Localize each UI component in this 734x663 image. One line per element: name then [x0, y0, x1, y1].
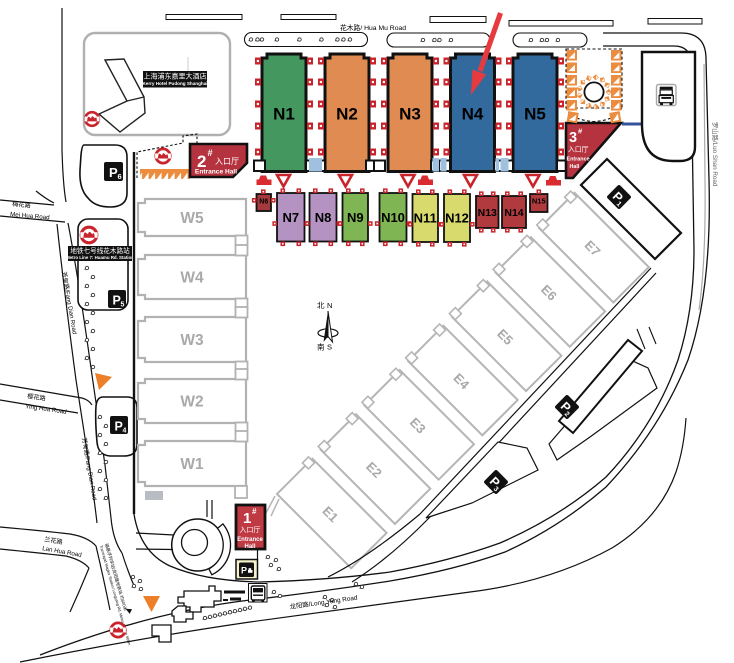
svg-text:Kerry Hotel Pudong Shanghai: Kerry Hotel Pudong Shanghai [142, 81, 207, 86]
svg-text:北: 北 [317, 301, 325, 310]
svg-text:Entrance: Entrance [567, 157, 590, 163]
svg-text:5: 5 [121, 302, 125, 309]
svg-text:W4: W4 [180, 270, 204, 287]
svg-text:W5: W5 [180, 210, 204, 227]
svg-text:N13: N13 [478, 207, 497, 219]
svg-text:#: # [208, 148, 213, 158]
svg-text:N7: N7 [282, 210, 299, 225]
svg-text:1: 1 [243, 510, 251, 527]
svg-text:N1: N1 [273, 105, 295, 124]
svg-text:梅花路: 梅花路 [12, 200, 32, 210]
svg-text:Metro Line 7: Huamu Rd. Statio: Metro Line 7: Huamu Rd. Station [66, 255, 134, 260]
svg-text:N5: N5 [524, 105, 546, 124]
svg-text:W3: W3 [180, 332, 204, 349]
svg-text:N2: N2 [336, 105, 358, 124]
svg-text:上海浦东嘉里大酒店: 上海浦东嘉里大酒店 [144, 72, 207, 81]
svg-text:Hall: Hall [570, 164, 580, 170]
svg-text:南: 南 [317, 342, 325, 352]
svg-text:N3: N3 [399, 105, 421, 124]
svg-text:W1: W1 [180, 456, 204, 473]
svg-text:入口厅: 入口厅 [240, 526, 261, 534]
svg-text:P: P [241, 566, 247, 576]
svg-text:入口厅: 入口厅 [568, 146, 589, 154]
svg-text:Entrance Hall: Entrance Hall [195, 169, 237, 176]
svg-text:N15: N15 [532, 197, 546, 206]
svg-text:4: 4 [123, 428, 127, 435]
svg-text:N14: N14 [504, 207, 523, 219]
svg-text:N12: N12 [445, 211, 469, 226]
svg-text:N6: N6 [259, 199, 268, 206]
svg-text:#: # [252, 507, 257, 516]
svg-text:罗山路/Luo Shan Road: 罗山路/Luo Shan Road [711, 122, 720, 187]
svg-text:W2: W2 [180, 394, 203, 411]
svg-text:S: S [327, 343, 332, 352]
svg-text:Hall: Hall [244, 544, 255, 550]
svg-text:6: 6 [118, 172, 122, 181]
svg-text:Entrance: Entrance [237, 537, 263, 543]
svg-text:N11: N11 [414, 211, 437, 226]
svg-text:N9: N9 [347, 210, 364, 225]
svg-text:3: 3 [569, 130, 577, 146]
svg-text:N10: N10 [381, 210, 405, 225]
svg-text:N4: N4 [462, 105, 484, 124]
svg-text:地铁七号线花木路站: 地铁七号线花木路站 [70, 246, 130, 255]
svg-text:N: N [327, 301, 332, 310]
svg-text:花木路/ Hua Mu Road: 花木路/ Hua Mu Road [340, 23, 406, 32]
svg-text:N8: N8 [315, 210, 332, 225]
svg-text:入口厅: 入口厅 [215, 157, 239, 166]
